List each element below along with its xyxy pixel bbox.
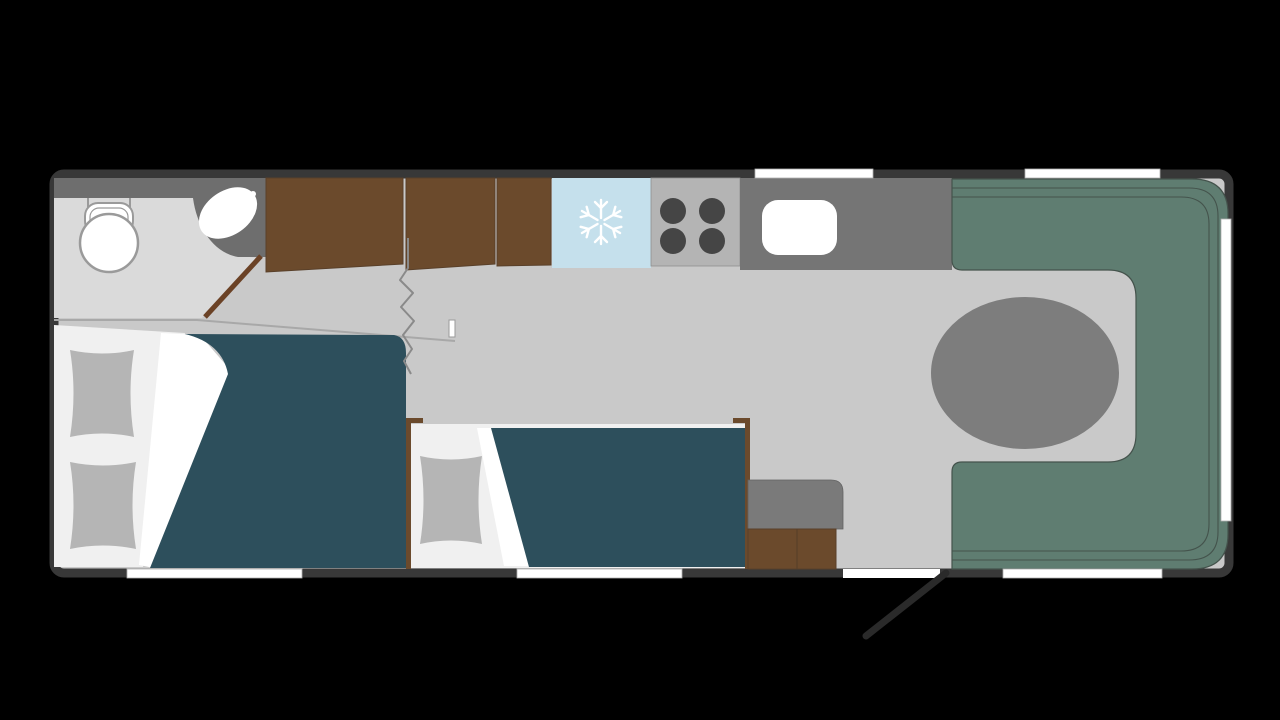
door-stop [449, 320, 455, 337]
window-bottom-2 [517, 569, 682, 578]
side-cabinet-top [748, 480, 843, 529]
pillow [420, 456, 482, 544]
bed-rail [406, 418, 411, 569]
hob-burner [699, 228, 725, 254]
side-cabinet-base [748, 529, 836, 569]
hob [651, 178, 740, 266]
wardrobe-unit-1 [266, 178, 403, 272]
hob-burner [699, 198, 725, 224]
window-bottom-3 [1003, 569, 1162, 578]
main-bed [54, 325, 406, 568]
pillow [70, 462, 136, 549]
hob-burner [660, 228, 686, 254]
window-top-2 [1025, 169, 1160, 178]
fridge [552, 178, 651, 268]
window-top-1 [755, 169, 873, 178]
side-bed [406, 418, 750, 569]
hob-burner [660, 198, 686, 224]
pillow [70, 350, 134, 437]
window-rear [1221, 219, 1231, 521]
duvet [491, 428, 745, 567]
lounge-table [931, 297, 1119, 449]
toilet-bowl [80, 214, 138, 272]
bed-rail-tab [733, 418, 750, 423]
basin-faucet-dot [250, 191, 256, 197]
wardrobe-unit-2 [406, 178, 495, 270]
bed-rail-tab [406, 418, 423, 423]
window-bottom-1 [127, 569, 302, 578]
wardrobe-unit-3 [497, 178, 551, 266]
kitchen-sink [762, 200, 837, 255]
caravan-floorplan-svg [0, 0, 1280, 720]
toilet [80, 198, 138, 272]
floorplan-canvas [0, 0, 1280, 720]
entrance-door-opening [843, 569, 940, 578]
